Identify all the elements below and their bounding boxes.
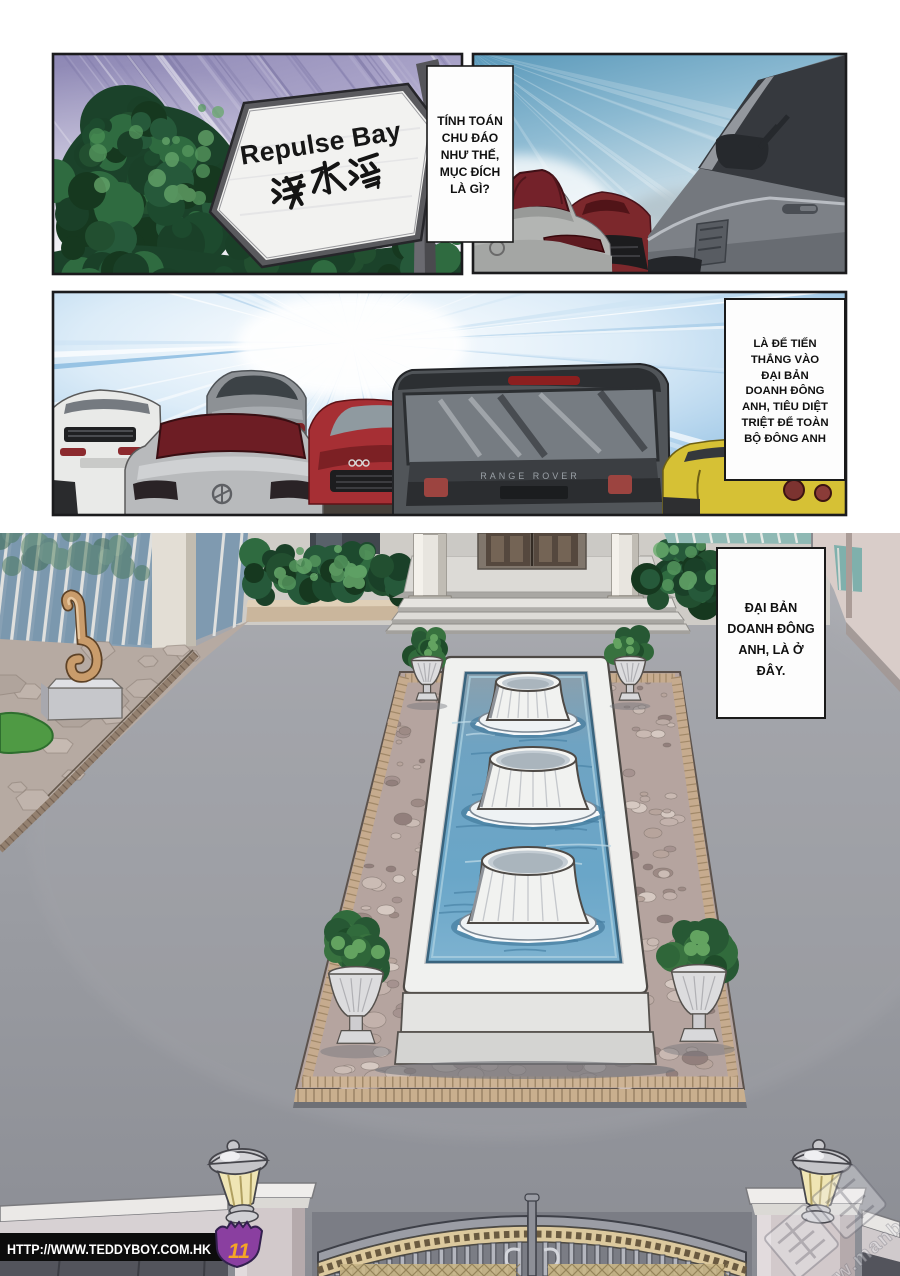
svg-text:11: 11 — [228, 1240, 250, 1263]
svg-text:CHU ĐÁO: CHU ĐÁO — [442, 130, 498, 145]
svg-text:RANGE ROVER: RANGE ROVER — [480, 471, 580, 481]
svg-text:NHƯ THẾ,: NHƯ THẾ, — [441, 147, 499, 162]
svg-text:BỘ ĐÔNG ANH: BỘ ĐÔNG ANH — [744, 432, 826, 445]
svg-text:THẲNG VÀO: THẲNG VÀO — [751, 353, 819, 366]
svg-text:ANH, LÀ Ở: ANH, LÀ Ở — [738, 642, 804, 657]
svg-text:TÍNH TOÁN: TÍNH TOÁN — [437, 113, 503, 128]
svg-text:DOANH ĐÔNG: DOANH ĐÔNG — [745, 384, 824, 397]
svg-text:ANH, TIÊU DIỆT: ANH, TIÊU DIỆT — [742, 400, 828, 413]
svg-text:MỤC ĐÍCH: MỤC ĐÍCH — [440, 164, 500, 179]
svg-text:ĐẠI BẢN: ĐẠI BẢN — [745, 600, 797, 615]
svg-text:ĐẠI BẢN: ĐẠI BẢN — [761, 369, 808, 382]
svg-text:HTTP://WWW.TEDDYBOY.COM.HK: HTTP://WWW.TEDDYBOY.COM.HK — [7, 1242, 212, 1258]
svg-text:LÀ GÌ?: LÀ GÌ? — [450, 181, 490, 196]
svg-text:LÀ ĐỂ TIẾN: LÀ ĐỂ TIẾN — [753, 337, 816, 350]
svg-text:DOANH ĐÔNG: DOANH ĐÔNG — [727, 621, 815, 636]
svg-text:TRIỆT ĐỂ TOÀN: TRIỆT ĐỂ TOÀN — [741, 416, 828, 429]
svg-text:ĐÂY.: ĐÂY. — [757, 663, 786, 678]
